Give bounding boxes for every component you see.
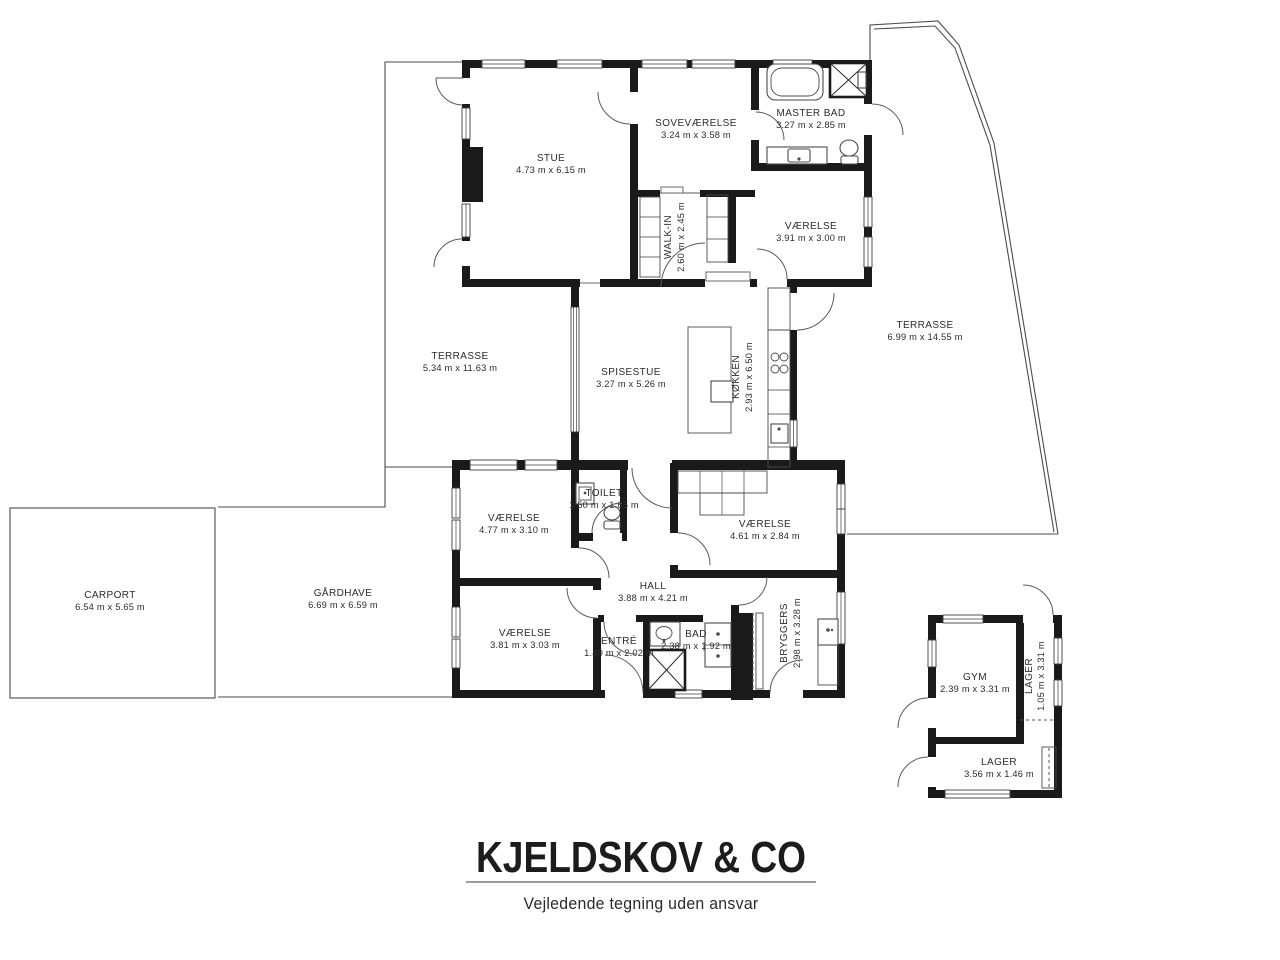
appliance-icon-bryggers xyxy=(818,619,838,685)
brand-logo-text: KJELDSKOV & CO xyxy=(476,833,806,882)
walkin-shelves-right xyxy=(707,195,728,262)
kitchen-island xyxy=(688,327,733,433)
room-label-gaardhave: GÅRDHAVE xyxy=(314,586,373,599)
bathtub-icon xyxy=(767,64,823,100)
room-label-spisestue: SPISESTUE xyxy=(601,367,661,378)
room-label-gym: GYM xyxy=(963,672,987,683)
room-label-bad: BAD xyxy=(685,629,707,640)
room-label-sovevaerelse: SOVEVÆRELSE xyxy=(655,118,737,129)
room-dims-bryggers: 2.98 m x 3.28 m xyxy=(792,598,802,668)
door-lager-bottom xyxy=(898,757,928,787)
room-dims-gaardhave: 6.69 m x 6.59 m xyxy=(308,600,378,610)
room-dims-terrasse-oest: 6.99 m x 14.55 m xyxy=(887,332,962,342)
room-dims-vaerelse-oest: 4.61 m x 2.84 m xyxy=(730,531,800,541)
room-dims-lager-hoej: 1.05 m x 3.31 m xyxy=(1036,641,1046,711)
sink-icon-masterbad xyxy=(767,147,827,164)
door-vaerelse-oest xyxy=(678,533,710,565)
floorplan-page: STUE 4.73 m x 6.15 m SOVEVÆRELSE 3.24 m … xyxy=(0,0,1280,960)
room-dims-entre: 1.40 m x 2.02 m xyxy=(584,648,654,658)
room-dims-koekken: 2.93 m x 6.50 m xyxy=(744,342,754,412)
brand-disclaimer-text: Vejledende tegning uden ansvar xyxy=(524,894,759,913)
door-sovevaerelse-stue xyxy=(598,92,630,124)
room-dims-gym: 2.39 m x 3.31 m xyxy=(940,684,1010,694)
room-label-vaerelse-syd: VÆRELSE xyxy=(499,628,551,639)
door-vaerelse-ne xyxy=(757,249,787,279)
door-stue-terrace-south xyxy=(434,239,462,267)
room-dims-terrasse-vest: 5.34 m x 11.63 m xyxy=(423,363,497,373)
walkin-shelves-left xyxy=(640,197,660,277)
room-dims-hall: 3.88 m x 4.21 m xyxy=(618,593,688,603)
room-label-koekken: KØKKEN xyxy=(731,355,742,399)
room-dims-carport: 6.54 m x 5.65 m xyxy=(75,602,145,612)
room-label-hall: HALL xyxy=(640,581,667,592)
room-label-lager-hoej: LAGER xyxy=(1024,658,1035,694)
door-gym xyxy=(898,698,928,728)
sink-icon-kitchen xyxy=(771,424,788,443)
room-label-vaerelse-ne: VÆRELSE xyxy=(785,221,837,232)
lager-shelf-rack xyxy=(1042,747,1056,788)
room-label-terrasse-oest: TERRASSE xyxy=(896,320,953,331)
floorplan-drawing: STUE 4.73 m x 6.15 m SOVEVÆRELSE 3.24 m … xyxy=(0,0,1280,960)
outline-terrace-east xyxy=(847,21,1058,534)
room-dims-bad: 2.38 m x 1.92 m xyxy=(661,641,731,651)
stove-icon xyxy=(771,353,788,373)
room-dims-walk-in: 2.60 m x 2.45 m xyxy=(676,202,686,272)
door-bryggers-hall xyxy=(739,577,767,605)
room-labels: STUE 4.73 m x 6.15 m SOVEVÆRELSE 3.24 m … xyxy=(75,108,1046,779)
room-dims-vaerelse-ne: 3.91 m x 3.00 m xyxy=(776,233,846,243)
shower-icon-masterbad xyxy=(830,63,867,97)
door-masterbad-terrace xyxy=(872,104,903,135)
room-label-lager-bred: LAGER xyxy=(981,757,1017,768)
room-label-terrasse-vest: TERRASSE xyxy=(431,351,488,362)
room-dims-spisestue: 3.27 m x 5.26 m xyxy=(596,379,666,389)
room-label-vaerelse-oest: VÆRELSE xyxy=(739,519,791,530)
room-dims-vaerelse-syd: 3.81 m x 3.03 m xyxy=(490,640,560,650)
sliding-door-walkin xyxy=(661,187,683,193)
door-entre-exterior xyxy=(605,655,643,693)
room-dims-lager-bred: 3.56 m x 1.46 m xyxy=(964,769,1034,779)
room-label-stue: STUE xyxy=(537,153,565,164)
room-label-vaerelse-vest: VÆRELSE xyxy=(488,513,540,524)
room-dims-sovevaerelse: 3.24 m x 3.58 m xyxy=(661,130,731,140)
room-label-toilet: TOILET xyxy=(585,488,622,499)
room-dims-vaerelse-vest: 4.77 m x 3.10 m xyxy=(479,525,549,535)
chimney xyxy=(462,147,483,202)
room-label-bryggers: BRYGGERS xyxy=(779,603,790,663)
sliding-door-window xyxy=(571,307,579,432)
door-lager-top xyxy=(1023,585,1053,615)
room-label-entre: ENTRÉ xyxy=(601,634,637,647)
door-stue-terrace-north xyxy=(436,78,463,105)
brand-block: KJELDSKOV & CO Vejledende tegning uden a… xyxy=(466,833,816,913)
door-koekken-terrace xyxy=(797,293,834,330)
room-label-master-bad: MASTER BAD xyxy=(776,108,845,119)
room-label-carport: CARPORT xyxy=(84,590,136,601)
door-vaerelse-syd xyxy=(567,588,597,618)
room-label-walk-in: WALK-IN xyxy=(663,215,674,259)
room-dims-toilet: 1.50 m x 1.65 m xyxy=(569,500,639,510)
outline-terrace-west xyxy=(218,62,462,507)
room-dims-stue: 4.73 m x 6.15 m xyxy=(516,165,586,175)
bryggers-cabinet xyxy=(753,613,763,690)
wardrobe-vaerelse-oest xyxy=(678,471,767,515)
door-vaerelse-vest xyxy=(579,548,609,578)
room-dims-master-bad: 3.27 m x 2.85 m xyxy=(776,120,846,130)
toilet-icon-masterbad xyxy=(840,140,858,164)
kitchen-counter xyxy=(768,288,790,467)
